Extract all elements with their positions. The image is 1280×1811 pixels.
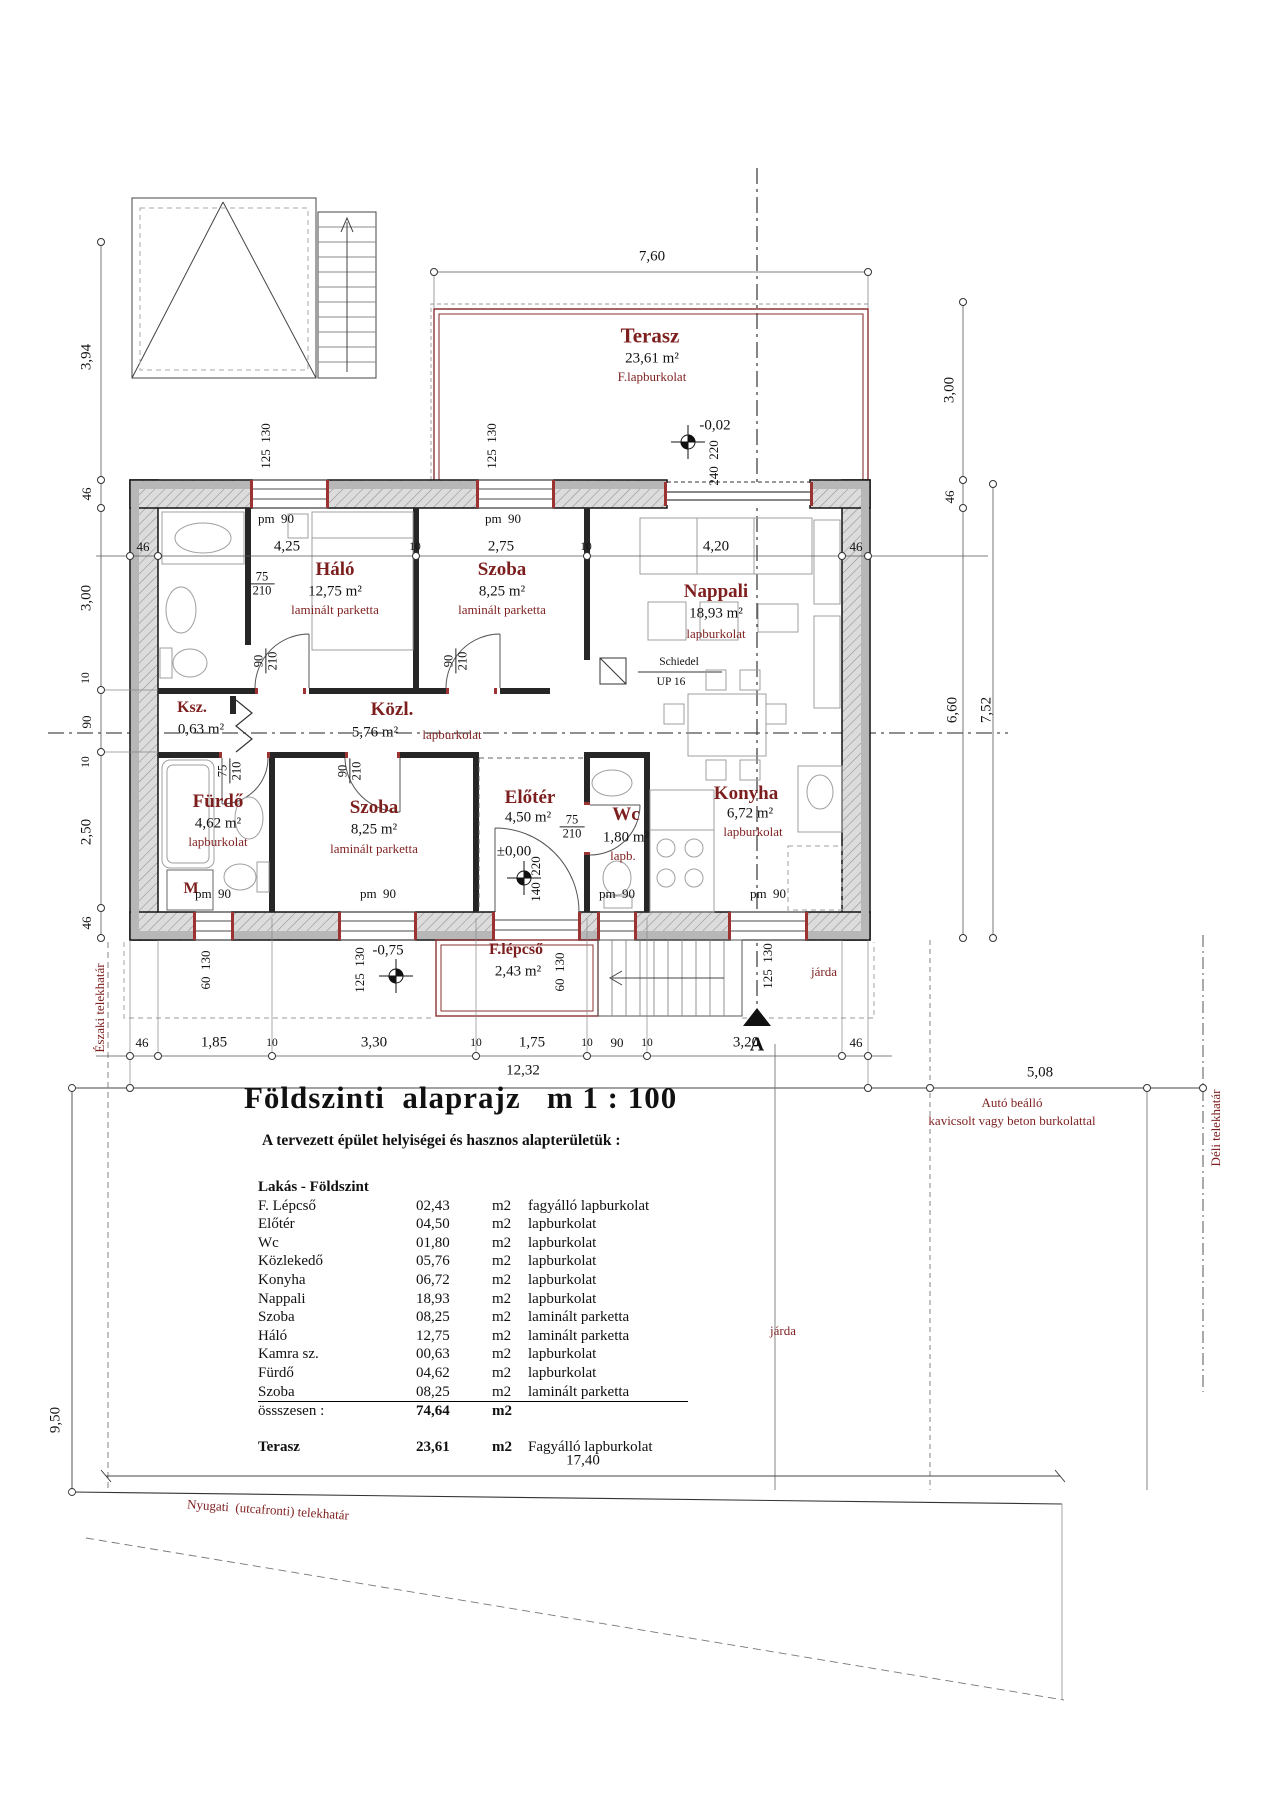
table-group-header: Lakás - Földszint: [258, 1178, 416, 1197]
garage-outline: [132, 198, 376, 378]
room-label-terasz: Terasz: [621, 324, 680, 349]
dim-bottom-4: 10: [470, 1037, 482, 1049]
dim-bottom-10: 46: [850, 1035, 863, 1051]
dim-bottom-3: 3,30: [361, 1035, 387, 1052]
room-finish-nappali: lapburkolat: [686, 626, 745, 642]
dim-top-3: 2,75: [488, 539, 514, 556]
room-area-furdo: 4,62 m²: [195, 816, 241, 833]
door-size-90-210-b: 90210: [442, 649, 469, 674]
table-terrace-row: Terasz23,61m2Fagyálló lapburkolat: [258, 1438, 758, 1457]
room-area-terasz: 23,61 m²: [625, 351, 679, 368]
window-size-halo: 125 130: [258, 423, 274, 469]
level-entry: ±0,00: [497, 844, 531, 861]
dim-top-0: 46: [137, 539, 150, 555]
room-area-szoba1: 8,25 m²: [479, 584, 525, 601]
room-label-szoba2: Szoba: [350, 797, 399, 819]
parapet-label-3: pm 90: [195, 886, 231, 902]
site-carport-2: kavicsolt vagy beton burkolattal: [928, 1113, 1095, 1129]
level-markers: [379, 425, 705, 993]
room-label-wc: Wc: [612, 804, 639, 826]
room-area-ksz: 0,63 m²: [178, 722, 224, 739]
room-label-flepcso: F.lépcső: [489, 941, 543, 959]
room-area-szoba2: 8,25 m²: [351, 822, 397, 839]
table-row: Kamra sz.00,63m2lapburkolat: [258, 1345, 758, 1364]
dim-bottom-7: 90: [611, 1035, 624, 1051]
room-finish-szoba1: laminált parketta: [458, 602, 546, 618]
table-row: Közlekedő05,76m2lapburkolat: [258, 1252, 758, 1271]
site-carport-1: Autó beálló: [981, 1095, 1042, 1111]
dim-left-1: 46: [79, 488, 95, 501]
room-finish-wc: lapb.: [610, 848, 636, 864]
dim-bottom-8: 10: [641, 1037, 653, 1049]
level-garden: -0,75: [372, 943, 403, 960]
dim-left-7: 46: [79, 917, 95, 930]
dim-top-6: 46: [850, 539, 863, 555]
room-label-kozl: Közl.: [371, 699, 414, 721]
table-row: Háló12,75m2laminált parketta: [258, 1327, 758, 1346]
room-label-konyha: Konyha: [714, 783, 778, 805]
dim-right-2: 6,60: [945, 697, 962, 723]
dim-left-4: 90: [79, 716, 95, 729]
room-label-eloter: Előtér: [505, 787, 556, 809]
dim-left-6: 2,50: [79, 819, 96, 845]
floor-plan-linework: [0, 0, 1280, 1811]
table-row: Fürdő04,62m2lapburkolat: [258, 1364, 758, 1383]
door-size-75-210-c: 75210: [560, 813, 585, 840]
door-swings: [222, 634, 640, 912]
room-area-konyha: 6,72 m²: [727, 806, 773, 823]
door-size-75-210-b: 75210: [216, 759, 243, 784]
window-size-furdo: 60 130: [198, 951, 214, 990]
dim-top-5: 4,20: [703, 539, 729, 556]
site-sidewalk-2: járda: [770, 1323, 796, 1339]
door-size-75-210-a: 75210: [250, 570, 275, 597]
table-row: Szoba08,25m2laminált parketta: [258, 1383, 688, 1403]
dim-bottom-9: 3,20: [733, 1035, 759, 1052]
dim-bottom-5: 1,75: [519, 1035, 545, 1052]
table-row: F. Lépcső02,43m2fagyálló lapburkolat: [258, 1197, 758, 1216]
room-finish-kozl: lapburkolat: [422, 727, 481, 743]
dim-right-3: 7,52: [979, 697, 996, 723]
dim-left-0: 3,94: [79, 344, 96, 370]
room-finish-halo: laminált parketta: [291, 602, 379, 618]
site-north-boundary: Északi telekhatár: [92, 963, 108, 1052]
table-total-row: össszesen :74,64m2: [258, 1402, 758, 1421]
room-area-flepcso: 2,43 m²: [495, 964, 541, 981]
chimney-label-type: UP 16: [657, 676, 686, 688]
parapet-label-1: pm 90: [258, 511, 294, 527]
room-label-halo: Háló: [315, 559, 354, 581]
dim-left-3: 10: [80, 672, 92, 684]
parapet-label-4: pm 90: [360, 886, 396, 902]
door-size-90-210-a: 90210: [252, 649, 279, 674]
entry-door-size: 140 220: [528, 856, 544, 902]
window-size-szoba1: 125 130: [484, 423, 500, 469]
site-sidewalk-1: járda: [811, 964, 837, 980]
title-block: Földszinti alaprajz m 1 : 100 A tervezet…: [244, 1080, 804, 1150]
floor-plan-sheet: Terasz 23,61 m² F.lapburkolat Háló 12,75…: [0, 0, 1280, 1811]
window-size-konyha: 125 130: [760, 943, 776, 989]
room-finish-terasz: F.lapburkolat: [618, 369, 687, 385]
room-finish-szoba2: laminált parketta: [330, 841, 418, 857]
room-area-eloter: 4,50 m²: [505, 810, 551, 827]
room-finish-furdo: lapburkolat: [188, 834, 247, 850]
site-south-boundary: Déli telekhatár: [1208, 1090, 1224, 1167]
dim-top-4: 10: [580, 541, 592, 553]
dim-total-width: 12,32: [506, 1063, 540, 1080]
table-row: Konyha06,72m2lapburkolat: [258, 1271, 758, 1290]
section-marker: [743, 1008, 771, 1026]
dim-top-1: 4,25: [274, 539, 300, 556]
dim-side-width: 5,08: [1027, 1065, 1053, 1082]
table-row: Szoba08,25m2laminált parketta: [258, 1308, 758, 1327]
room-label-furdo: Fürdő: [193, 791, 244, 813]
table-row: Előtér04,50m2lapburkolat: [258, 1215, 758, 1234]
dim-left-2: 3,00: [79, 585, 96, 611]
dim-terasz-width: 7,60: [639, 249, 665, 266]
door-size-90-210-c: 90210: [336, 759, 363, 784]
room-area-halo: 12,75 m²: [308, 584, 362, 601]
window-size-szoba2: 125 130: [352, 947, 368, 993]
table-row: Wc01,80m2lapburkolat: [258, 1234, 758, 1253]
dim-right-1: 46: [942, 491, 958, 504]
dim-left-5: 10: [80, 756, 92, 768]
parapet-label-5: pm 90: [599, 886, 635, 902]
dim-bottom-2: 10: [266, 1037, 278, 1049]
room-label-nappali: Nappali: [684, 581, 748, 603]
room-area-nappali: 18,93 m²: [689, 606, 743, 623]
room-finish-konyha: lapburkolat: [723, 824, 782, 840]
parapet-label-6: pm 90: [750, 886, 786, 902]
dim-right-0: 3,00: [942, 377, 959, 403]
parapet-label-2: pm 90: [485, 511, 521, 527]
dim-bottom-6: 10: [581, 1037, 593, 1049]
dim-depth: 9,50: [48, 1407, 65, 1433]
dim-bottom-1: 1,85: [201, 1035, 227, 1052]
room-label-szoba1: Szoba: [478, 559, 527, 581]
area-table: Lakás - Földszint F. Lépcső02,43m2fagyál…: [258, 1178, 758, 1456]
dim-top-2: 10: [409, 541, 421, 553]
drawing-title: Földszinti alaprajz m 1 : 100: [244, 1080, 804, 1116]
level-terrace: -0,02: [699, 418, 730, 435]
stair-size-label: 60 130: [552, 953, 568, 992]
room-area-kozl: 5,76 m²: [352, 725, 398, 742]
room-area-wc: 1,80 m²: [603, 830, 649, 847]
table-row: Nappali18,93m2lapburkolat: [258, 1290, 758, 1309]
terrace-door-size: 240 220: [706, 440, 722, 486]
room-label-ksz: Ksz.: [177, 699, 207, 717]
drawing-subtitle: A tervezett épület helyiségei és hasznos…: [262, 1132, 804, 1150]
dim-bottom-0: 46: [136, 1035, 149, 1051]
chimney-label-brand: Schiedel: [659, 656, 699, 668]
